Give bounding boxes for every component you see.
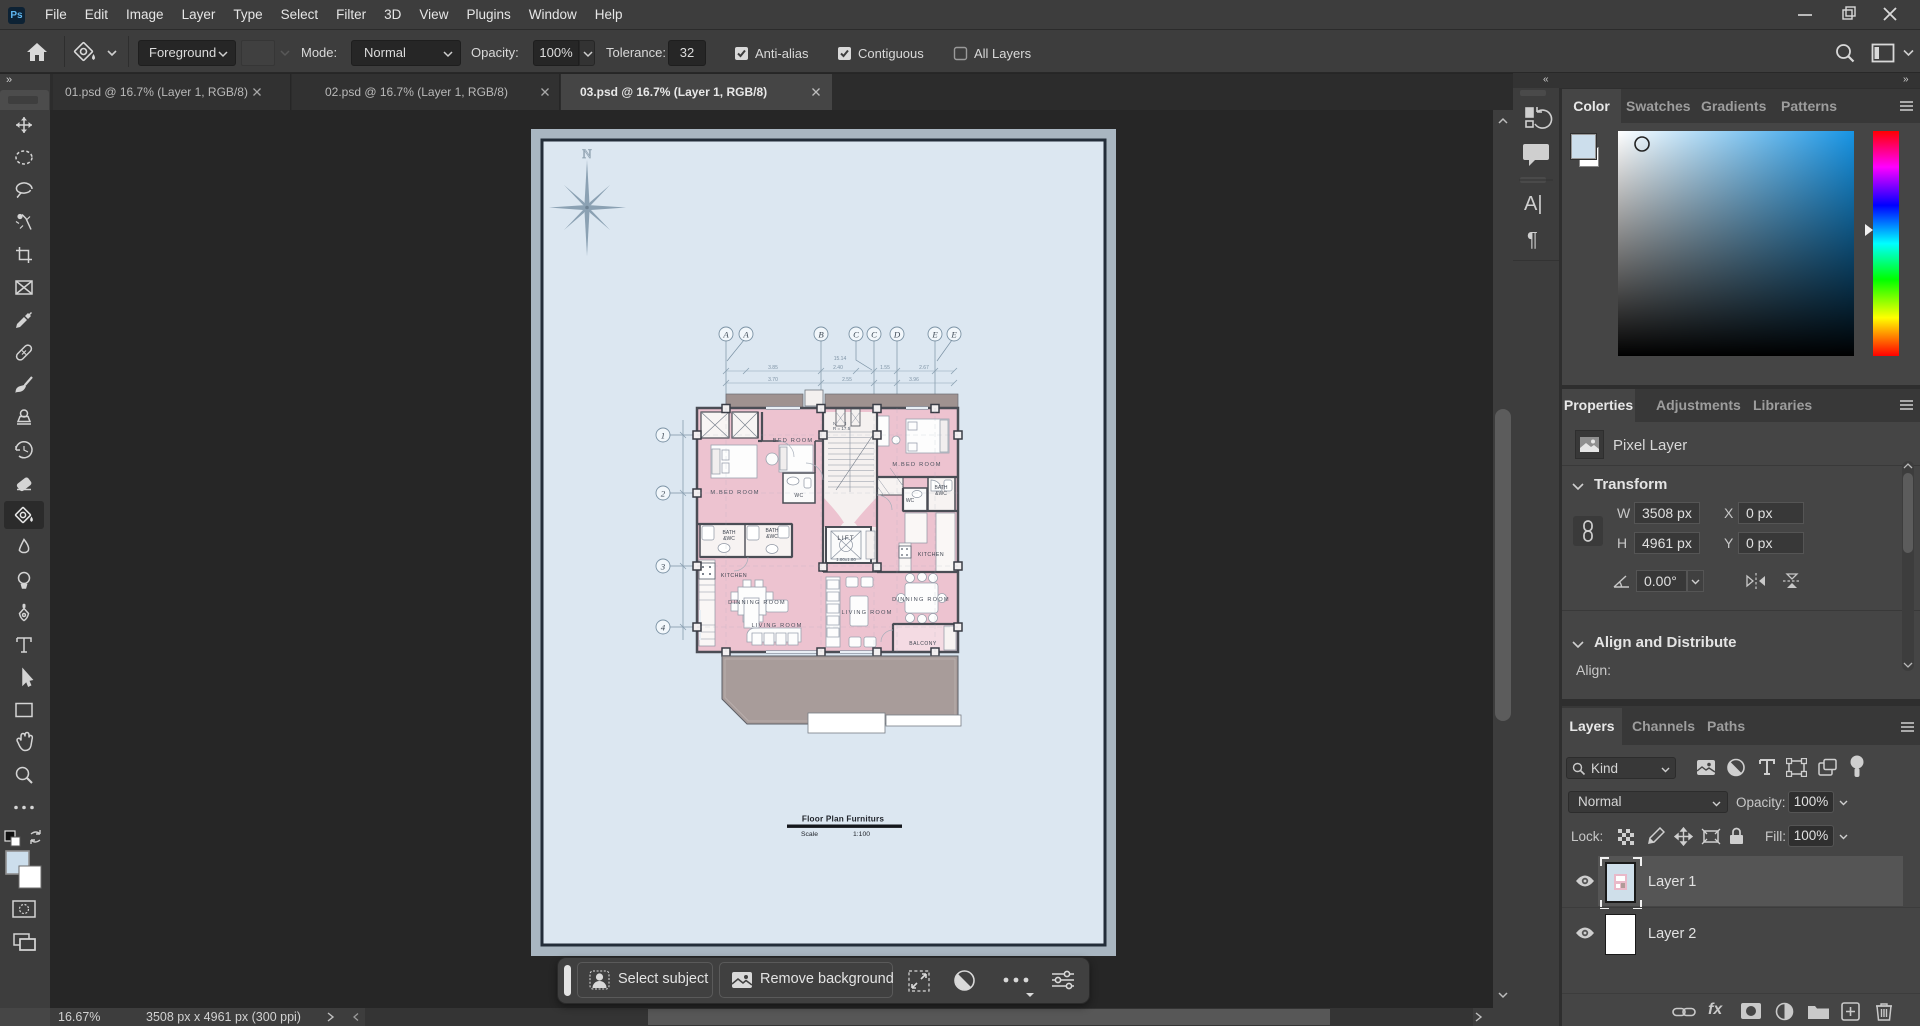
svg-text:D: D <box>893 330 901 340</box>
svg-text:R = 17.5: R = 17.5 <box>833 426 851 431</box>
svg-text:KITCHEN: KITCHEN <box>918 552 944 558</box>
svg-text:3.85: 3.85 <box>768 365 778 371</box>
svg-text:DINNING ROOM: DINNING ROOM <box>892 597 950 603</box>
svg-text:KITCHEN: KITCHEN <box>721 573 747 579</box>
svg-text:15.14: 15.14 <box>834 356 847 362</box>
svg-text:2.67: 2.67 <box>919 365 929 371</box>
svg-text:2.55: 2.55 <box>842 377 852 383</box>
svg-text:LIVING ROOM: LIVING ROOM <box>841 610 892 616</box>
svg-text:C: C <box>871 330 877 340</box>
svg-text:LIFT: LIFT <box>837 535 854 542</box>
svg-text:Scale: Scale <box>801 831 818 838</box>
svg-text:A: A <box>722 330 729 340</box>
svg-text:4: 4 <box>661 623 666 633</box>
svg-text:C: C <box>853 330 859 340</box>
svg-text:3: 3 <box>660 562 666 572</box>
svg-text:N: N <box>582 146 592 161</box>
svg-text:WC: WC <box>794 493 803 499</box>
svg-text:2: 2 <box>661 489 666 499</box>
svg-text:LIVING ROOM: LIVING ROOM <box>751 623 802 629</box>
svg-text:&WC: &WC <box>723 536 735 542</box>
svg-text:M.BED ROOM: M.BED ROOM <box>892 462 941 468</box>
svg-text:1.80x1.80: 1.80x1.80 <box>836 557 856 562</box>
svg-text:2.40: 2.40 <box>833 365 843 371</box>
svg-text:1:100: 1:100 <box>853 831 870 838</box>
svg-text:BALCONY: BALCONY <box>909 641 937 647</box>
svg-text:A|: A| <box>1524 193 1543 215</box>
svg-text:WC: WC <box>906 498 915 504</box>
svg-text:&WC: &WC <box>935 491 947 497</box>
svg-text:DINNING ROOM: DINNING ROOM <box>728 600 786 606</box>
svg-text:1.55: 1.55 <box>880 365 890 371</box>
svg-text:Floor Plan Furniturs: Floor Plan Furniturs <box>802 815 884 824</box>
svg-text:1: 1 <box>661 431 665 441</box>
svg-text:&WC: &WC <box>766 534 778 540</box>
svg-text:3.70: 3.70 <box>768 377 778 383</box>
svg-text:BED ROOM: BED ROOM <box>773 438 814 444</box>
svg-text:A: A <box>742 330 749 340</box>
svg-text:E: E <box>950 330 957 340</box>
svg-text:B: B <box>818 330 824 340</box>
svg-text:3.96: 3.96 <box>909 377 919 383</box>
svg-text:E: E <box>931 330 938 340</box>
svg-text:¶: ¶ <box>1527 229 1538 251</box>
